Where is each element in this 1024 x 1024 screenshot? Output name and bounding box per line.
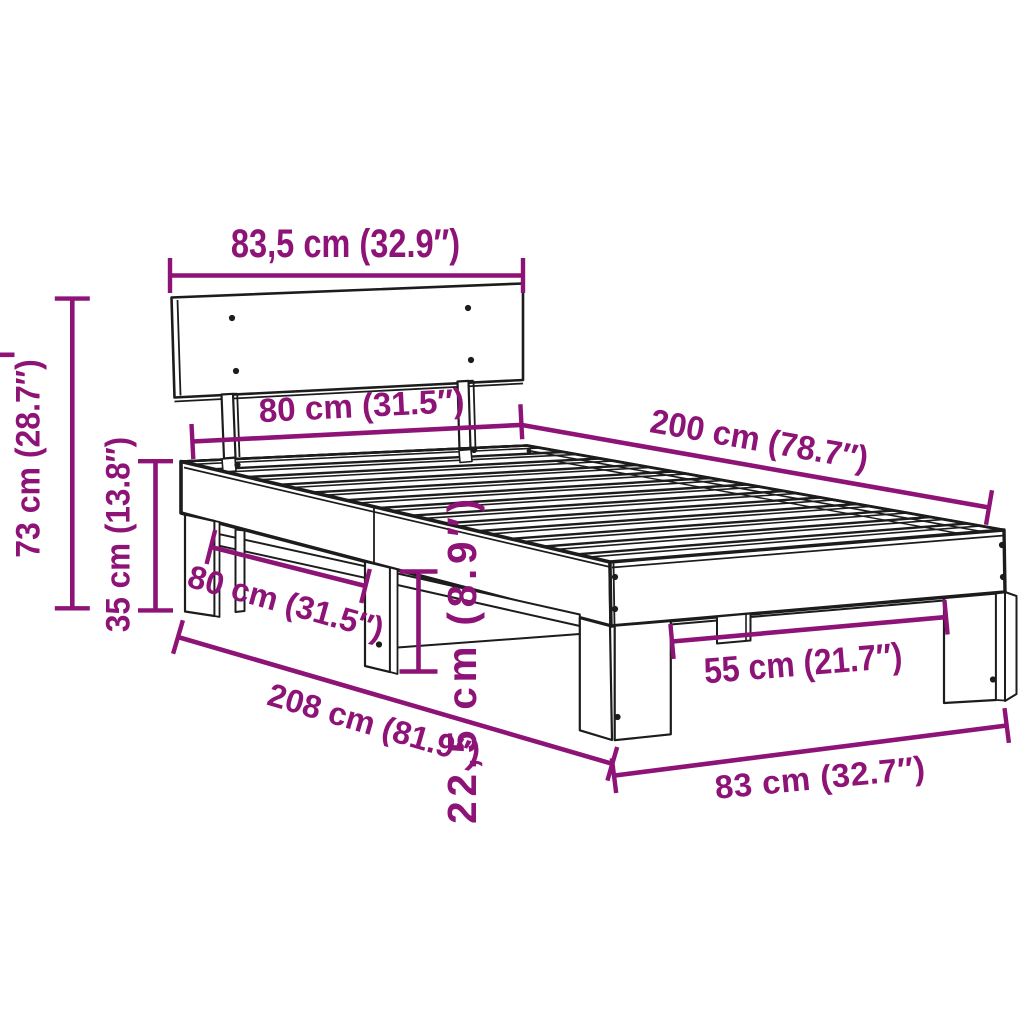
svg-text:83,5 cm (32.9″): 83,5 cm (32.9″): [231, 221, 460, 266]
svg-text:73 cm (28.7″): 73 cm (28.7″): [9, 359, 47, 558]
svg-text:22,5 cm (8.9″): 22,5 cm (8.9″): [439, 494, 485, 824]
svg-text:35 cm (13.8″): 35 cm (13.8″): [98, 437, 137, 632]
